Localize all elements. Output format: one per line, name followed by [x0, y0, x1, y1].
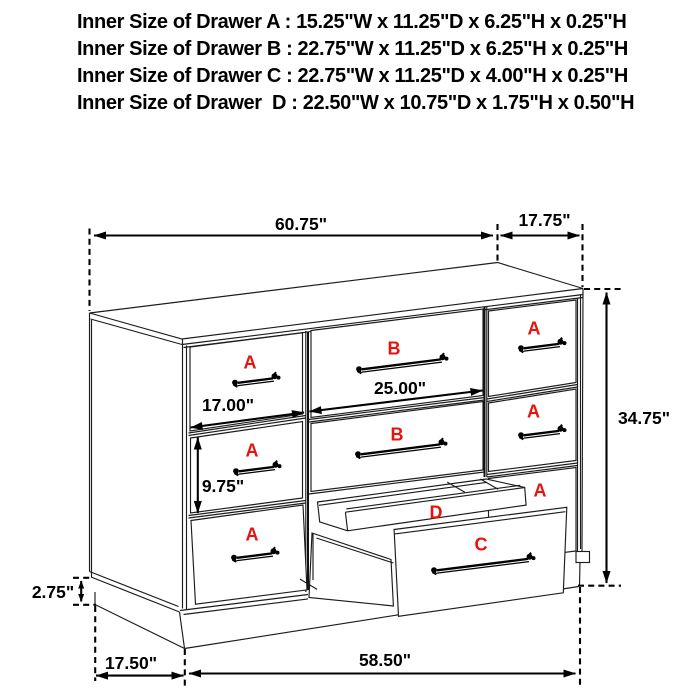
svg-text:34.75": 34.75"	[618, 408, 670, 428]
svg-text:17.75": 17.75"	[518, 210, 570, 230]
svg-text:A: A	[244, 353, 257, 373]
svg-text:58.50": 58.50"	[359, 650, 411, 670]
svg-text:17.50": 17.50"	[105, 653, 157, 673]
svg-text:A: A	[246, 525, 259, 545]
svg-text:Inner Size of Drawer D : 22.5: Inner Size of Drawer D : 22.50"W x 10.75…	[77, 92, 634, 114]
svg-text:60.75": 60.75"	[275, 214, 327, 234]
svg-text:A: A	[528, 319, 541, 339]
svg-text:C: C	[475, 535, 488, 555]
svg-text:A: A	[534, 481, 547, 501]
svg-text:B: B	[388, 339, 401, 359]
svg-text:B: B	[391, 425, 404, 445]
svg-text:D: D	[430, 503, 443, 523]
svg-text:2.75": 2.75"	[32, 582, 74, 602]
svg-text:Inner Size of Drawer C : 22.75: Inner Size of Drawer C : 22.75"W x 11.25…	[77, 65, 628, 87]
svg-text:25.00": 25.00"	[374, 378, 426, 398]
svg-text:Inner Size of Drawer B : 22.75: Inner Size of Drawer B : 22.75"W x 11.25…	[77, 38, 628, 60]
svg-text:Inner Size of Drawer A : 15.25: Inner Size of Drawer A : 15.25"W x 11.25…	[77, 11, 626, 33]
svg-text:A: A	[527, 402, 540, 422]
svg-text:17.00": 17.00"	[202, 395, 254, 415]
svg-text:9.75": 9.75"	[202, 476, 244, 496]
svg-text:A: A	[246, 441, 259, 461]
